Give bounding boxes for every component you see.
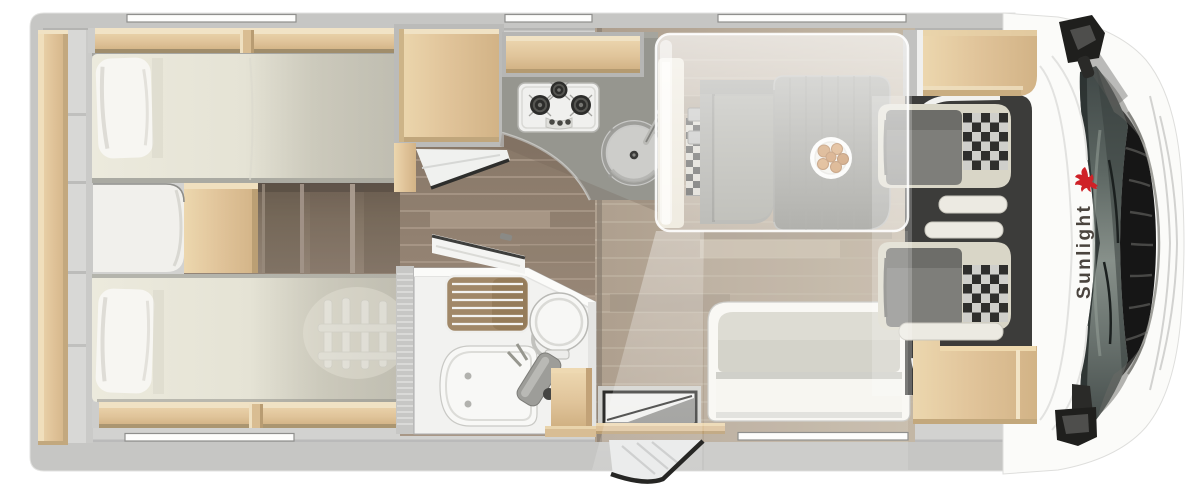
svg-text:Sunlight: Sunlight [1074, 204, 1095, 299]
